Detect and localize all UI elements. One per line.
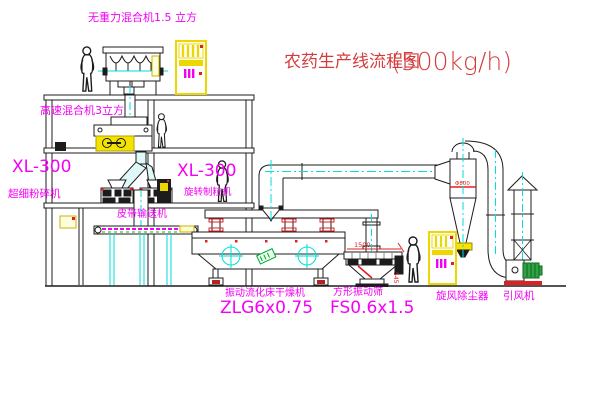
- diagram-canvas: 无重力混合机1.5 立方 农药生产线流程图 (500kg/h) 高速混合机3立方…: [0, 0, 600, 403]
- dim-screen-width: 1500: [354, 241, 371, 249]
- label-belt-conveyor: 皮带输送机: [117, 207, 167, 220]
- label-high-speed-mixer: 高速混合机3立方: [40, 103, 124, 117]
- gravity-free-mixer-figure: [98, 47, 168, 95]
- operator-level2: [157, 114, 167, 147]
- small-bin: [60, 216, 76, 228]
- control-cabinet-right: [429, 232, 456, 284]
- label-xl-left-model: XL-300: [12, 157, 71, 177]
- label-fan: 引风机: [503, 289, 535, 302]
- diagram-title-capacity: (500kg/h): [391, 47, 512, 76]
- label-xl-left-name: 超细粉碎机: [8, 187, 61, 200]
- wall-box: [55, 142, 66, 151]
- label-xl-mid-name: 旋转制粒机: [184, 186, 232, 198]
- label-dryer-model: ZLG6x0.75: [220, 298, 313, 318]
- process-flow-diagram: 无重力混合机1.5 立方 农药生产线流程图 (500kg/h) 高速混合机3立方…: [0, 0, 600, 403]
- label-gravity-mixer: 无重力混合机1.5 立方: [88, 10, 197, 24]
- fan-figure: [504, 260, 542, 285]
- dim-cyclone-dia: Φ800: [455, 181, 470, 187]
- dim-screen-height: 545: [392, 272, 399, 284]
- label-screen-model: FS0.6x1.5: [330, 298, 414, 318]
- operator-ground: [407, 237, 420, 282]
- label-screen-name: 方形振动筛: [333, 285, 383, 298]
- control-cabinet-top: [176, 41, 206, 94]
- control-cabinet-mid: [157, 179, 171, 203]
- label-xl-mid-model: XL-300: [177, 161, 236, 181]
- label-cyclone: 旋风除尘器: [436, 289, 489, 302]
- high-speed-mixer-figure: [94, 117, 152, 151]
- operator-top: [81, 47, 94, 91]
